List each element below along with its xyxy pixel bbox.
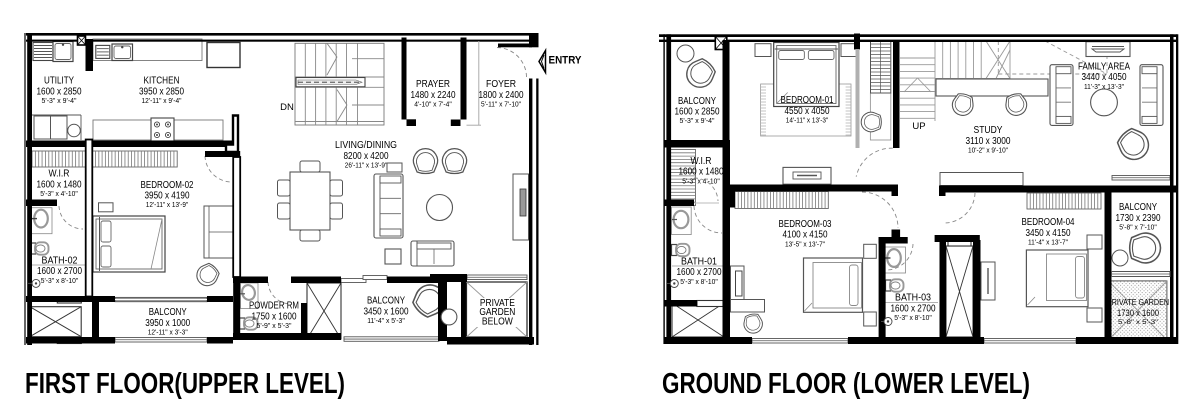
svg-text:1600 x 2850: 1600 x 2850 [37,86,82,97]
svg-text:1730 x 2390: 1730 x 2390 [1116,213,1161,224]
svg-text:5'-11" x 7'-10": 5'-11" x 7'-10" [481,101,521,108]
svg-text:FIRST FLOOR(UPPER LEVEL): FIRST FLOOR(UPPER LEVEL) [25,368,345,400]
svg-text:5'-3" x 8'-10": 5'-3" x 8'-10" [894,315,932,322]
svg-text:3950 x 2850: 3950 x 2850 [139,86,184,97]
svg-text:BATH-01: BATH-01 [681,256,717,267]
svg-text:BEDROOM-02: BEDROOM-02 [141,180,194,191]
svg-text:1730 x 1600: 1730 x 1600 [1117,307,1159,318]
svg-text:4100 x 4150: 4100 x 4150 [783,230,828,241]
svg-text:11'-4" x 13'-7": 11'-4" x 13'-7" [1028,239,1068,246]
svg-text:FOYER: FOYER [486,79,516,90]
svg-text:BALCONY: BALCONY [1119,202,1157,213]
svg-text:13'-5" x 13'-7": 13'-5" x 13'-7" [785,241,825,248]
svg-text:1480 x 2240: 1480 x 2240 [411,90,456,101]
svg-text:STUDY: STUDY [974,125,1003,136]
svg-text:5'-3" x 4'-10": 5'-3" x 4'-10" [682,178,720,185]
svg-text:5'-3" x 9'-4": 5'-3" x 9'-4" [680,118,715,125]
svg-text:1600 x 2700: 1600 x 2700 [677,267,722,278]
svg-text:BEDROOM-03: BEDROOM-03 [779,219,832,230]
svg-text:FAMILY AREA: FAMILY AREA [1078,61,1130,72]
svg-text:BALCONY: BALCONY [367,296,405,307]
svg-text:1800 x 2400: 1800 x 2400 [479,90,524,101]
svg-text:4'-10" x 7'-4": 4'-10" x 7'-4" [414,101,452,108]
svg-text:POWDER RM: POWDER RM [249,301,299,312]
svg-text:PRIVATE GARDEN: PRIVATE GARDEN [1107,298,1169,307]
svg-text:BEDROOM-01: BEDROOM-01 [781,95,834,106]
svg-text:12'-11" x 13'-9": 12'-11" x 13'-9" [146,202,189,209]
svg-text:1600 x 2700: 1600 x 2700 [37,266,82,277]
svg-text:UP: UP [912,121,925,132]
svg-text:3440 x 4050: 3440 x 4050 [1082,72,1127,83]
svg-text:11'-3" x 13'-3": 11'-3" x 13'-3" [1084,84,1124,91]
svg-text:1600 x 2700: 1600 x 2700 [891,304,936,315]
svg-text:1600 x 1480: 1600 x 1480 [679,167,724,178]
svg-text:10'-2" x 9'-10": 10'-2" x 9'-10" [968,148,1008,155]
svg-text:1600 x 2850: 1600 x 2850 [675,107,720,118]
svg-text:14'-11" x 13'-3": 14'-11" x 13'-3" [786,117,829,124]
svg-text:PRAYER: PRAYER [416,79,450,90]
svg-text:DN: DN [280,102,294,113]
svg-text:5'-3" x 8'-10": 5'-3" x 8'-10" [680,279,718,286]
svg-text:5'-3" x 4'-10": 5'-3" x 4'-10" [40,191,78,198]
svg-text:1750 x 1600: 1750 x 1600 [252,311,297,322]
svg-text:KITCHEN: KITCHEN [144,76,180,87]
svg-text:LIVING/DINING: LIVING/DINING [335,140,397,151]
svg-text:11'-4" x 5'-3": 11'-4" x 5'-3" [367,318,405,325]
svg-text:5'-3" x 8'-10": 5'-3" x 8'-10" [41,278,79,285]
svg-text:W.I.R: W.I.R [49,169,70,180]
svg-text:5'-8" x 7'-10": 5'-8" x 7'-10" [1119,225,1157,232]
svg-text:BALCONY: BALCONY [678,96,716,107]
svg-text:ENTRY: ENTRY [549,54,583,66]
svg-text:3450 x 4150: 3450 x 4150 [1026,228,1071,239]
svg-text:BEDROOM-04: BEDROOM-04 [1022,217,1075,228]
svg-text:5'-8" x 5'-3": 5'-8" x 5'-3" [1118,319,1159,326]
svg-text:12'-11" x 3'-3": 12'-11" x 3'-3" [148,330,188,337]
svg-text:GROUND FLOOR (LOWER LEVEL): GROUND FLOOR (LOWER LEVEL) [662,368,1030,400]
svg-text:12'-11" x 9'-4": 12'-11" x 9'-4" [142,98,182,105]
svg-text:3950 x 4190: 3950 x 4190 [145,191,190,202]
svg-text:BATH-02: BATH-02 [42,255,78,266]
svg-text:5'-3" x 9'-4": 5'-3" x 9'-4" [42,98,77,105]
svg-text:8200 x 4200: 8200 x 4200 [344,151,389,162]
svg-text:BATH-03: BATH-03 [895,293,931,304]
svg-text:3950 x 1000: 3950 x 1000 [145,318,190,329]
svg-text:4550 x 4050: 4550 x 4050 [785,106,830,117]
svg-text:W.I.R: W.I.R [691,156,712,167]
svg-text:3110 x 3000: 3110 x 3000 [966,136,1011,147]
svg-text:BELOW: BELOW [482,316,513,327]
svg-text:1600 x 1480: 1600 x 1480 [37,180,82,191]
svg-text:5'-9" x 5'-3": 5'-9" x 5'-3" [257,323,292,330]
svg-text:26'-11" x 13'-9": 26'-11" x 13'-9" [345,162,388,169]
svg-text:3450 x 1600: 3450 x 1600 [364,306,409,317]
svg-text:UTILITY: UTILITY [44,76,74,87]
svg-text:BALCONY: BALCONY [149,307,187,318]
